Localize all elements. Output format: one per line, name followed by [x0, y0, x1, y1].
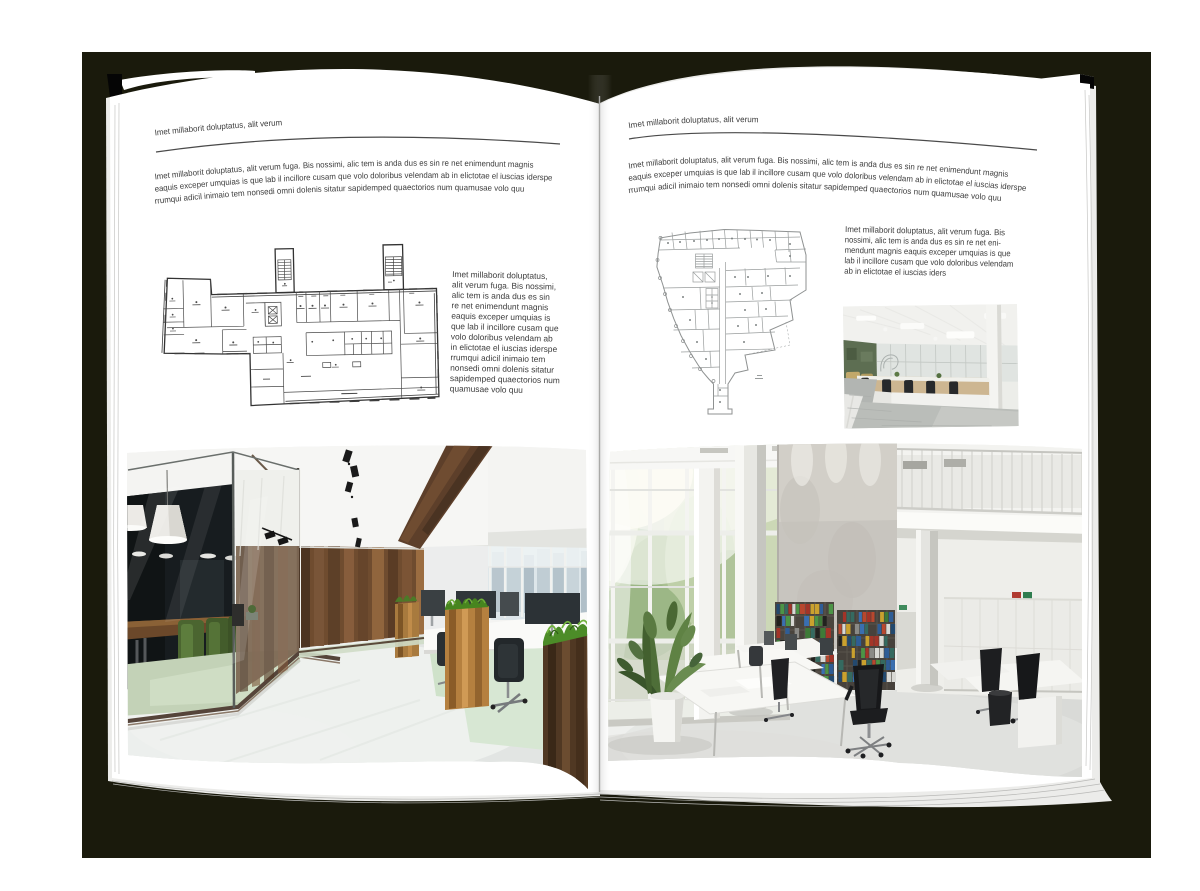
svg-text:ab in elictotae el iuscias ide: ab in elictotae el iuscias iders	[844, 266, 946, 278]
svg-text:quamusae volo quu: quamusae volo quu	[450, 383, 524, 395]
